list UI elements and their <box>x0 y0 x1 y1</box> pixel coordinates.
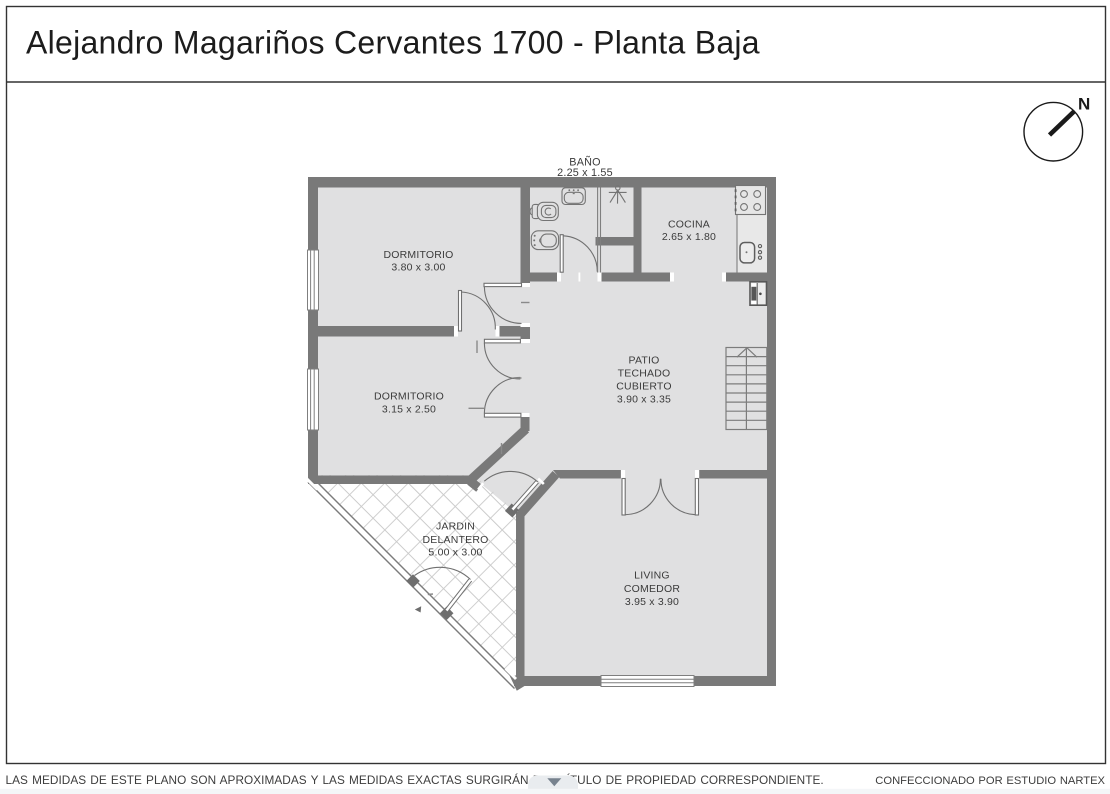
svg-text:2.65 x 1.80: 2.65 x 1.80 <box>662 231 716 243</box>
svg-text:3.90 x 3.35: 3.90 x 3.35 <box>617 393 671 405</box>
svg-text:DORMITORIO: DORMITORIO <box>383 249 453 261</box>
svg-text:Alejandro Magariños Cervantes: Alejandro Magariños Cervantes 1700 - Pla… <box>26 25 760 61</box>
svg-text:LIVING: LIVING <box>634 570 670 582</box>
svg-text:DELANTERO: DELANTERO <box>423 534 489 546</box>
svg-text:COCINA: COCINA <box>668 219 710 231</box>
svg-text:DORMITORIO: DORMITORIO <box>374 391 444 403</box>
svg-text:CONFECCIONADO POR ESTUDIO NART: CONFECCIONADO POR ESTUDIO NARTEX <box>875 775 1105 787</box>
svg-text:N: N <box>1078 95 1090 114</box>
svg-text:JARDIN: JARDIN <box>436 520 475 532</box>
svg-text:PATIO: PATIO <box>629 355 660 367</box>
svg-text:3.80 x 3.00: 3.80 x 3.00 <box>391 261 445 273</box>
svg-text:5.00 x 3.00: 5.00 x 3.00 <box>428 546 482 558</box>
svg-text:3.95 x 3.90: 3.95 x 3.90 <box>625 596 679 608</box>
svg-text:TECHADO: TECHADO <box>618 368 671 380</box>
svg-text:COMEDOR: COMEDOR <box>624 583 680 595</box>
svg-text:CUBIERTO: CUBIERTO <box>616 381 671 393</box>
svg-text:LAS MEDIDAS DE ESTE PLANO SON: LAS MEDIDAS DE ESTE PLANO SON APROXIMADA… <box>6 773 824 787</box>
svg-text:3.15 x 2.50: 3.15 x 2.50 <box>382 404 436 416</box>
svg-text:2.25 x 1.55: 2.25 x 1.55 <box>557 167 613 179</box>
